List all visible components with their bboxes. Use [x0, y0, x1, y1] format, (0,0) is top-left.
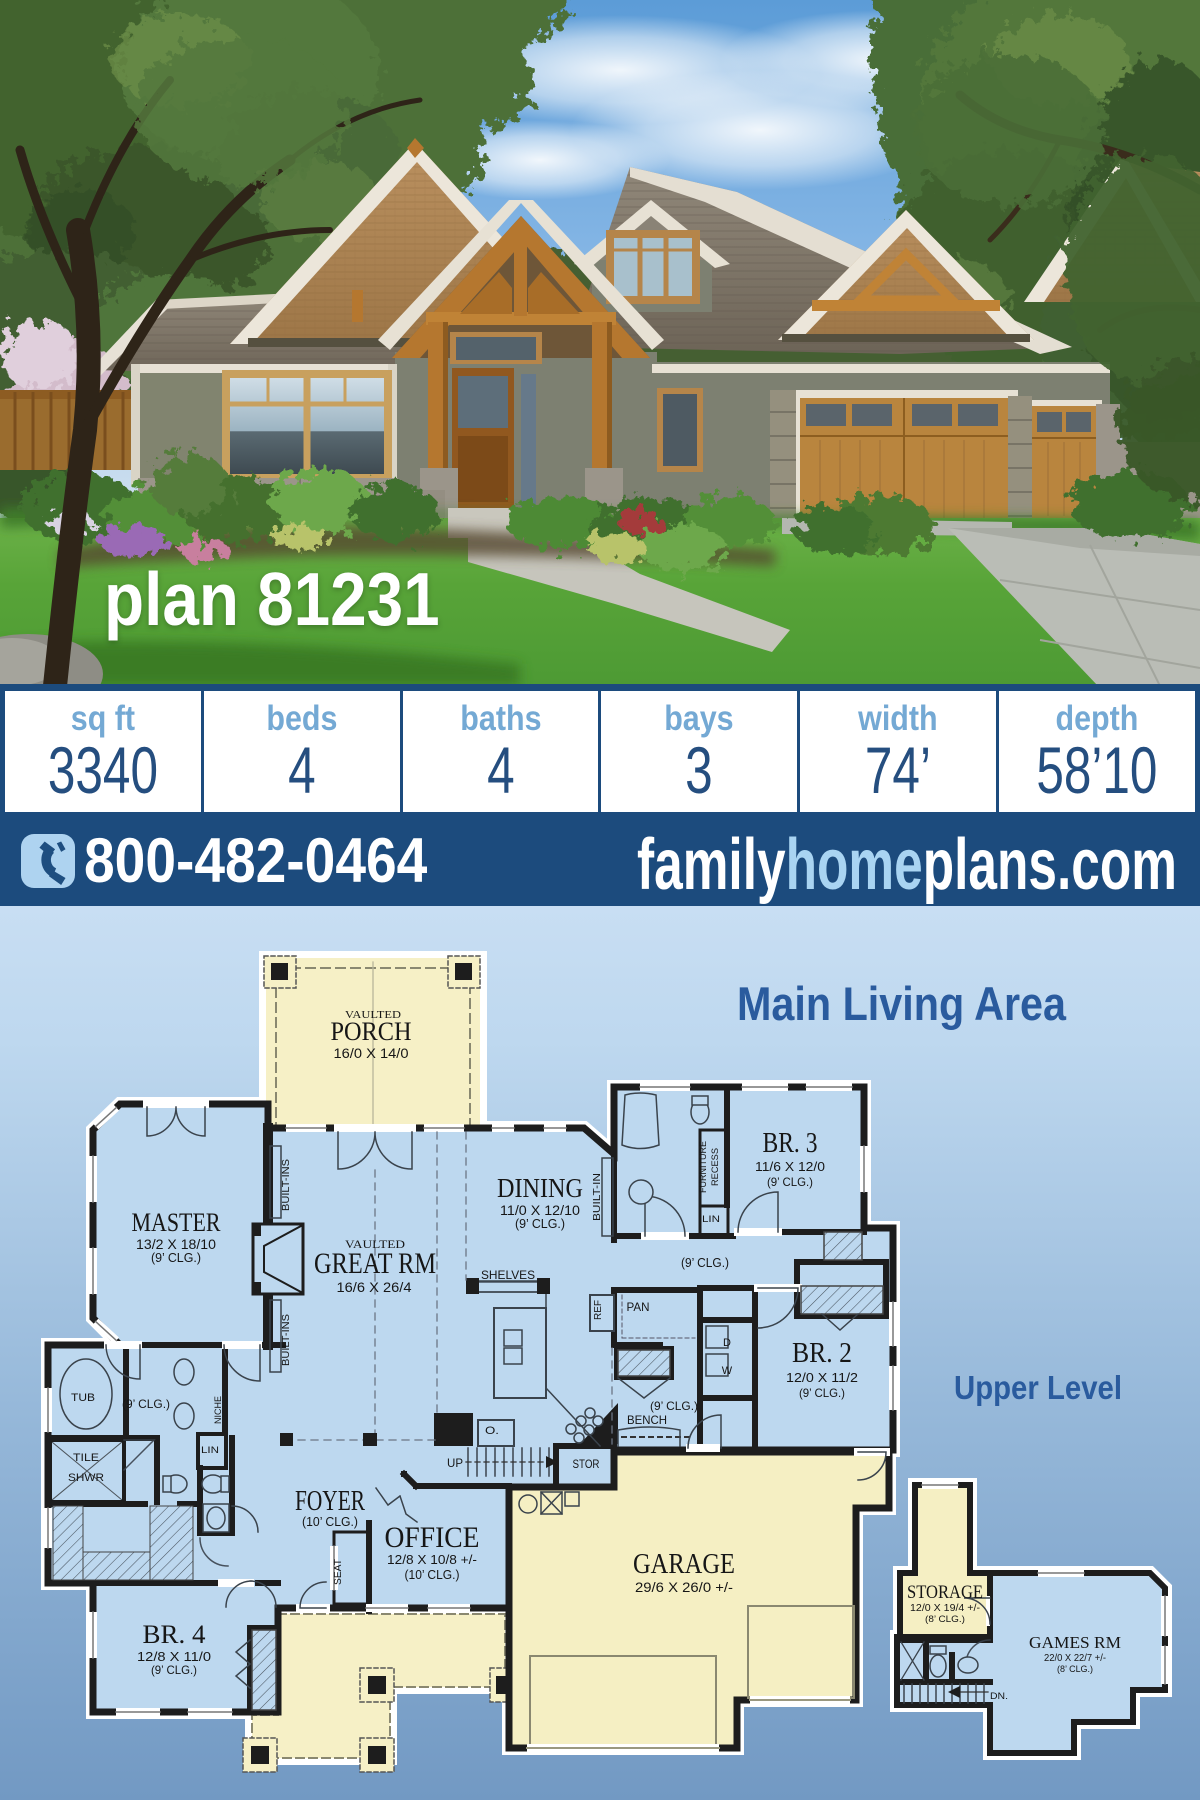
svg-text:D: D [723, 1337, 731, 1349]
svg-text:MASTER: MASTER [132, 1208, 222, 1237]
svg-text:12/0 X 19/4 +/-: 12/0 X 19/4 +/- [910, 1603, 980, 1614]
svg-text:(8’ CLG.): (8’ CLG.) [925, 1614, 965, 1625]
svg-text:NICHE: NICHE [213, 1396, 223, 1424]
svg-text:(9’ CLG.): (9’ CLG.) [681, 1256, 729, 1270]
svg-text:(10’ CLG.): (10’ CLG.) [302, 1514, 358, 1529]
svg-text:12/0 X 11/2: 12/0 X 11/2 [786, 1370, 858, 1385]
svg-text:Main Living Area: Main Living Area [737, 977, 1067, 1030]
svg-text:SHWR: SHWR [68, 1472, 104, 1484]
svg-text:BENCH: BENCH [627, 1413, 667, 1427]
svg-text:W: W [722, 1365, 733, 1377]
svg-text:BUILT-INS: BUILT-INS [281, 1159, 292, 1211]
svg-text:SHELVES: SHELVES [481, 1268, 535, 1282]
svg-text:GAMES RM: GAMES RM [1029, 1633, 1121, 1652]
svg-text:(9’ CLG.): (9’ CLG.) [515, 1217, 565, 1231]
svg-text:TUB: TUB [71, 1392, 95, 1404]
svg-text:BR. 3: BR. 3 [763, 1128, 818, 1159]
svg-text:12/8 X 10/8 +/-: 12/8 X 10/8 +/- [387, 1552, 477, 1567]
svg-text:UP: UP [447, 1456, 463, 1470]
svg-text:O.: O. [485, 1425, 499, 1437]
svg-text:RECESS: RECESS [710, 1148, 721, 1186]
svg-text:OFFICE: OFFICE [385, 1521, 480, 1554]
svg-text:STORAGE: STORAGE [907, 1582, 983, 1603]
svg-text:11/6 X 12/0: 11/6 X 12/0 [755, 1159, 825, 1174]
svg-text:LIN: LIN [702, 1214, 720, 1224]
svg-text:(9’ CLG.): (9’ CLG.) [799, 1386, 845, 1400]
svg-text:FURNITURE: FURNITURE [698, 1141, 709, 1193]
svg-text:GARAGE: GARAGE [633, 1549, 735, 1580]
svg-text:PORCH: PORCH [331, 1017, 412, 1046]
svg-text:Upper Level: Upper Level [954, 1369, 1122, 1406]
svg-text:BUILT-INS: BUILT-INS [281, 1314, 292, 1366]
svg-text:16/6 X 26/4: 16/6 X 26/4 [337, 1279, 412, 1295]
svg-text:STOR: STOR [573, 1457, 600, 1471]
svg-text:11/0 X 12/10: 11/0 X 12/10 [500, 1202, 580, 1218]
svg-text:DINING: DINING [497, 1173, 583, 1203]
svg-text:(9’ CLG.): (9’ CLG.) [767, 1175, 813, 1189]
svg-text:(9’ CLG.): (9’ CLG.) [650, 1399, 698, 1413]
svg-text:LIN: LIN [201, 1445, 219, 1455]
svg-text:TILE: TILE [73, 1452, 99, 1464]
svg-text:REF: REF [593, 1300, 604, 1320]
svg-text:(9’ CLG.): (9’ CLG.) [122, 1397, 170, 1411]
svg-text:29/6 X 26/0 +/-: 29/6 X 26/0 +/- [635, 1579, 733, 1595]
svg-text:PAN: PAN [627, 1300, 650, 1314]
svg-text:12/8 X 11/0: 12/8 X 11/0 [137, 1649, 211, 1664]
svg-text:16/0 X 14/0: 16/0 X 14/0 [334, 1045, 409, 1061]
svg-text:FOYER: FOYER [295, 1486, 365, 1517]
svg-text:(9’ CLG.): (9’ CLG.) [151, 1251, 201, 1265]
svg-text:BR. 2: BR. 2 [792, 1338, 852, 1369]
svg-text:(9’ CLG.): (9’ CLG.) [151, 1663, 197, 1677]
svg-text:13/2 X 18/10: 13/2 X 18/10 [136, 1236, 216, 1252]
svg-text:22/0 X 22/7 +/-: 22/0 X 22/7 +/- [1044, 1653, 1106, 1664]
svg-text:GREAT RM: GREAT RM [314, 1247, 436, 1280]
svg-text:BUILT-IN: BUILT-IN [591, 1173, 603, 1221]
svg-text:BR. 4: BR. 4 [143, 1620, 206, 1649]
svg-text:(10’ CLG.): (10’ CLG.) [405, 1567, 460, 1582]
svg-text:(8’ CLG.): (8’ CLG.) [1057, 1664, 1093, 1675]
svg-text:SEAT: SEAT [333, 1559, 344, 1585]
svg-text:DN.: DN. [990, 1691, 1008, 1701]
